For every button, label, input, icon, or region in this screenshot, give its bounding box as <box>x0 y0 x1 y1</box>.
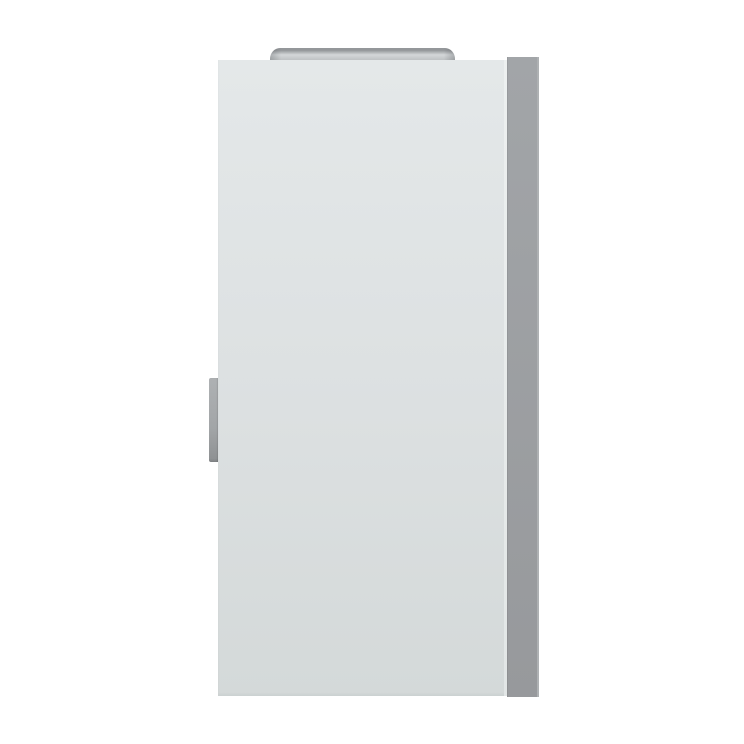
door-handle <box>209 378 218 462</box>
appliance-side-panel <box>507 57 539 697</box>
appliance-front-panel <box>218 60 507 696</box>
product-render <box>0 0 744 744</box>
